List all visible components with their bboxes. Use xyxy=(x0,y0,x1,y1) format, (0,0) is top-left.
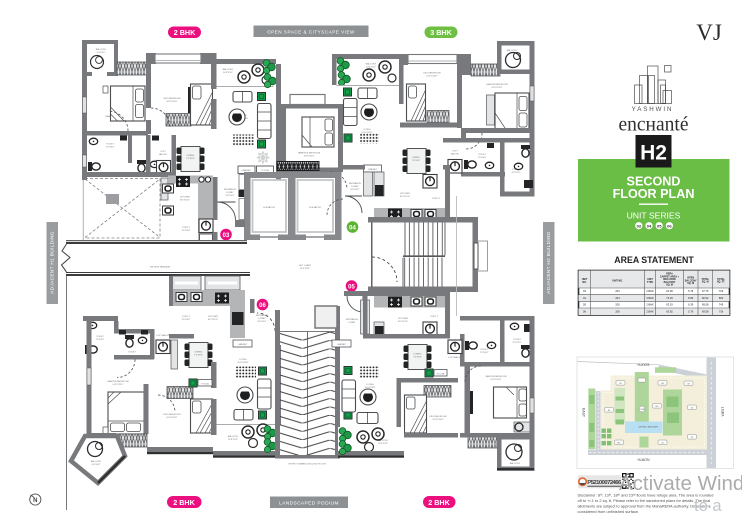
svg-text:8'0"X10'0": 8'0"X10'0" xyxy=(180,200,190,202)
svg-text:KIDS BEDROOM: KIDS BEDROOM xyxy=(423,73,440,75)
svg-text:LIFT LOBBY: LIFT LOBBY xyxy=(299,265,312,267)
svg-text:ELEVATOR: ELEVATOR xyxy=(309,206,321,209)
svg-text:KIDS BEDROOM: KIDS BEDROOM xyxy=(429,416,446,418)
svg-text:10'0"X5'0": 10'0"X5'0" xyxy=(378,443,388,445)
svg-text:VJ: VJ xyxy=(696,20,722,45)
svg-text:3 BHK: 3 BHK xyxy=(646,296,654,300)
svg-text:BALCONY: BALCONY xyxy=(96,48,107,51)
svg-text:2 BHK: 2 BHK xyxy=(646,289,654,293)
svg-text:UNIT SERIES: UNIT SERIES xyxy=(627,211,681,221)
svg-text:TOILET: TOILET xyxy=(96,336,104,338)
svg-text:10'0"X5'0": 10'0"X5'0" xyxy=(366,67,376,69)
svg-text:TOILET: TOILET xyxy=(480,349,488,351)
svg-text:LOFT: LOFT xyxy=(452,151,458,153)
svg-text:7'6"X8'0": 7'6"X8'0" xyxy=(186,158,195,160)
svg-text:10'0"X10'0": 10'0"X10'0" xyxy=(166,101,177,103)
svg-text:CABINET: CABINET xyxy=(238,343,248,346)
svg-text:encнanté: encнanté xyxy=(619,115,689,136)
svg-text:DINING: DINING xyxy=(414,354,422,356)
svg-text:TOILET: TOILET xyxy=(128,352,136,354)
svg-text:LOFT: LOFT xyxy=(160,151,166,153)
svg-text:4'0"X5'0": 4'0"X5'0" xyxy=(97,52,106,54)
svg-text:67.75: 67.75 xyxy=(702,289,709,293)
svg-text:10'0"X12'0": 10'0"X12'0" xyxy=(490,379,501,381)
svg-text:204: 204 xyxy=(615,296,620,300)
svg-text:69.58: 69.58 xyxy=(702,303,709,307)
svg-text:ENTRANCE: ENTRANCE xyxy=(346,318,359,321)
svg-text:03: 03 xyxy=(637,223,642,228)
svg-text:7'6"X8'0": 7'6"X8'0" xyxy=(412,160,421,162)
svg-text:7'0"X4'0": 7'0"X4'0" xyxy=(480,352,489,354)
svg-text:N: N xyxy=(33,498,37,504)
svg-text:BALCONY: BALCONY xyxy=(228,435,239,438)
svg-text:BALCONY: BALCONY xyxy=(366,63,377,66)
svg-text:CLUB: CLUB xyxy=(639,409,645,411)
svg-text:10'0"X5'0": 10'0"X5'0" xyxy=(228,439,238,441)
svg-text:KIDS BEDROOM: KIDS BEDROOM xyxy=(163,414,180,416)
svg-text:LOBBY: LOBBY xyxy=(351,186,359,188)
svg-text:ELEVATOR: ELEVATOR xyxy=(263,206,275,209)
svg-text:2M WIDE PASSAGE: 2M WIDE PASSAGE xyxy=(150,266,171,269)
svg-text:04: 04 xyxy=(647,223,652,228)
svg-text:3'0"X8'0": 3'0"X8'0" xyxy=(182,319,191,321)
svg-text:ABOVE: ABOVE xyxy=(159,153,167,156)
svg-text:Activate Windo: Activate Windo xyxy=(619,472,742,495)
svg-text:FLOOR PLAN: FLOOR PLAN xyxy=(613,187,695,201)
svg-text:4'0"X7'0": 4'0"X7'0" xyxy=(512,172,521,174)
svg-text:7'6"X8'0": 7'6"X8'0" xyxy=(194,355,203,357)
svg-text:MASTER BEDROOM: MASTER BEDROOM xyxy=(486,83,507,86)
svg-text:61.99: 61.99 xyxy=(666,289,673,293)
svg-text:LOBBY: LOBBY xyxy=(348,322,356,324)
svg-text:10'0"X11'0": 10'0"X11'0" xyxy=(304,156,315,158)
svg-text:P52100072466: P52100072466 xyxy=(587,480,622,486)
svg-text:H2: H2 xyxy=(640,142,667,165)
svg-text:SQ. M: SQ. M xyxy=(702,281,709,284)
svg-text:UNIT NO.: UNIT NO. xyxy=(612,280,623,283)
svg-text:BALCONY: BALCONY xyxy=(507,49,518,52)
svg-text:TOILET: TOILET xyxy=(106,144,114,146)
svg-text:2 BHK: 2 BHK xyxy=(646,303,654,307)
svg-text:8'0"X10'0": 8'0"X10'0" xyxy=(398,321,408,323)
svg-text:3'0"X8'0": 3'0"X8'0" xyxy=(182,230,191,232)
svg-text:OPEN SPACE & CITYSCAPE VIEW: OPEN SPACE & CITYSCAPE VIEW xyxy=(267,30,355,35)
svg-text:KIDS BEDROOM: KIDS BEDROOM xyxy=(163,98,180,100)
svg-text:UTILITY: UTILITY xyxy=(432,198,441,200)
svg-text:7'0"X4'0": 7'0"X4'0" xyxy=(106,147,115,149)
svg-text:8'0"X5'0": 8'0"X5'0" xyxy=(351,189,360,191)
svg-text:NO.: NO. xyxy=(582,281,587,284)
svg-text:to a: to a xyxy=(694,497,722,515)
svg-text:69.58: 69.58 xyxy=(702,310,709,314)
svg-text:KITCHEN: KITCHEN xyxy=(208,316,218,318)
svg-text:ADJACENT H1 BUILDING: ADJACENT H1 BUILDING xyxy=(50,231,56,294)
svg-text:05: 05 xyxy=(657,223,662,228)
svg-text:2 BHK: 2 BHK xyxy=(173,498,195,507)
svg-text:10'0"X12'0": 10'0"X12'0" xyxy=(112,384,123,386)
svg-text:2 BHK: 2 BHK xyxy=(646,310,654,314)
svg-text:DINING: DINING xyxy=(195,352,203,354)
svg-text:CABINET: CABINET xyxy=(368,168,378,171)
svg-text:06: 06 xyxy=(667,223,672,228)
svg-text:6'6"X6'6": 6'6"X6'6" xyxy=(92,464,101,466)
svg-text:CENTRAL LANDSCAPE: CENTRAL LANDSCAPE xyxy=(638,426,659,429)
svg-text:BALCONY: BALCONY xyxy=(510,462,521,465)
svg-text:63.82: 63.82 xyxy=(666,310,673,314)
svg-text:749: 749 xyxy=(719,303,724,307)
svg-text:EAST: EAST xyxy=(582,408,586,417)
svg-text:BALCONY: BALCONY xyxy=(91,460,102,463)
svg-text:ABOVE: ABOVE xyxy=(451,153,459,156)
svg-text:MASTER BEDROOM: MASTER BEDROOM xyxy=(485,375,506,378)
svg-text:8'0"X5'0": 8'0"X5'0" xyxy=(226,195,235,197)
svg-text:8'0"X10'0": 8'0"X10'0" xyxy=(400,196,410,198)
svg-text:10'0"X5'0": 10'0"X5'0" xyxy=(223,72,233,74)
svg-text:CABINET: CABINET xyxy=(337,343,347,346)
svg-text:206: 206 xyxy=(615,310,620,314)
svg-text:ENTRANCE: ENTRANCE xyxy=(224,188,237,191)
svg-text:729: 729 xyxy=(719,289,724,293)
svg-text:7'6"X4'0": 7'6"X4'0" xyxy=(96,339,105,341)
svg-text:82.92: 82.92 xyxy=(702,296,709,300)
svg-text:10'0"X10'0": 10'0"X10'0" xyxy=(432,419,443,421)
svg-text:SQ. M: SQ. M xyxy=(687,282,694,285)
svg-text:7'6"X8'0": 7'6"X8'0" xyxy=(413,357,422,359)
svg-text:74.03: 74.03 xyxy=(666,296,673,300)
svg-text:YASHWIN: YASHWIN xyxy=(632,106,674,113)
svg-text:5.76: 5.76 xyxy=(688,310,694,314)
svg-text:8.89: 8.89 xyxy=(688,296,694,300)
svg-text:10'0"X10'0": 10'0"X10'0" xyxy=(166,417,177,419)
svg-text:LIVING: LIVING xyxy=(239,359,246,361)
svg-text:6.39: 6.39 xyxy=(688,303,694,307)
svg-text:LANDSCAPED PODIUM: LANDSCAPED PODIUM xyxy=(279,501,339,507)
svg-text:05: 05 xyxy=(348,284,355,290)
svg-text:POOJA: POOJA xyxy=(261,169,269,172)
svg-text:TOILET: TOILET xyxy=(513,339,521,341)
svg-text:3 BHK: 3 BHK xyxy=(430,28,452,37)
svg-text:TYPE: TYPE xyxy=(647,281,654,284)
svg-text:ENTRY TOWARDS SECOND FLOOR: ENTRY TOWARDS SECOND FLOOR xyxy=(288,463,325,466)
svg-text:KITCHEN: KITCHEN xyxy=(398,318,408,320)
svg-text:LIVING: LIVING xyxy=(363,129,370,131)
svg-text:10'0"X10'0": 10'0"X10'0" xyxy=(426,76,437,78)
svg-text:SQ. M: SQ. M xyxy=(666,284,673,287)
svg-text:5.76: 5.76 xyxy=(688,289,694,293)
svg-text:63.19: 63.19 xyxy=(666,303,673,307)
svg-text:NORTH: NORTH xyxy=(637,458,650,462)
svg-text:21'0"X9'4": 21'0"X9'4" xyxy=(300,268,310,270)
svg-text:BALCONY: BALCONY xyxy=(223,68,234,71)
svg-text:WEST: WEST xyxy=(721,407,725,417)
svg-text:CABINET: CABINET xyxy=(242,169,252,172)
svg-text:PARENTS BEDROOM: PARENTS BEDROOM xyxy=(298,152,320,155)
svg-text:UTILITY: UTILITY xyxy=(182,227,191,229)
svg-text:2 BHK: 2 BHK xyxy=(174,28,196,37)
svg-text:KITCHEN: KITCHEN xyxy=(180,197,190,199)
svg-text:DINING: DINING xyxy=(187,155,195,157)
svg-text:ADJACENT H2 BUILDING: ADJACENT H2 BUILDING xyxy=(546,231,552,294)
svg-text:AREA STATEMENT: AREA STATEMENT xyxy=(614,255,694,265)
svg-text:06: 06 xyxy=(259,303,266,309)
svg-text:DINING: DINING xyxy=(412,157,420,159)
svg-text:LOBBY: LOBBY xyxy=(258,318,266,320)
svg-text:UTILITY: UTILITY xyxy=(430,316,439,318)
svg-text:8'0"X5'0": 8'0"X5'0" xyxy=(258,321,267,323)
svg-text:SOUTH: SOUTH xyxy=(637,362,649,366)
svg-text:considered from unfinished sur: considered from unfinished surface. xyxy=(578,509,640,514)
svg-text:736: 736 xyxy=(719,310,724,314)
svg-text:893: 893 xyxy=(719,296,724,300)
svg-text:7'0"X4'0": 7'0"X4'0" xyxy=(478,157,487,159)
svg-text:off to +/-1 to 2 sq. ft. Pleas: off to +/-1 to 2 sq. ft. Please refer to… xyxy=(578,498,711,503)
svg-text:POOJA: POOJA xyxy=(201,382,209,385)
svg-text:LIVING: LIVING xyxy=(366,384,373,386)
svg-text:SQ. FT.: SQ. FT. xyxy=(717,281,725,284)
svg-text:205: 205 xyxy=(615,303,620,307)
svg-text:2 BHK: 2 BHK xyxy=(428,498,450,507)
svg-text:ENTRANCE: ENTRANCE xyxy=(349,182,362,185)
svg-text:10'0"X13'0": 10'0"X13'0" xyxy=(237,362,248,364)
svg-text:LOBBY: LOBBY xyxy=(226,192,234,194)
svg-text:TOILET: TOILET xyxy=(478,154,486,156)
svg-text:8'0"X10'0": 8'0"X10'0" xyxy=(208,319,218,321)
svg-text:04: 04 xyxy=(349,225,356,231)
svg-text:LOFT ABOVE: LOFT ABOVE xyxy=(156,334,170,337)
svg-text:UTILITY: UTILITY xyxy=(182,316,191,318)
svg-text:POOJA: POOJA xyxy=(437,372,445,375)
svg-text:LOFT ABOVE: LOFT ABOVE xyxy=(448,356,462,359)
svg-text:03: 03 xyxy=(223,233,230,239)
svg-text:4'0"X7'0": 4'0"X7'0" xyxy=(513,342,522,344)
svg-text:10'0"X12'0": 10'0"X12'0" xyxy=(491,87,502,89)
svg-text:allotments are subject to appr: allotments are subject to approval from … xyxy=(578,504,711,509)
svg-text:KITCHEN: KITCHEN xyxy=(400,193,410,195)
svg-text:203: 203 xyxy=(615,289,620,293)
svg-text:MASTER BEDROOM: MASTER BEDROOM xyxy=(107,380,128,383)
